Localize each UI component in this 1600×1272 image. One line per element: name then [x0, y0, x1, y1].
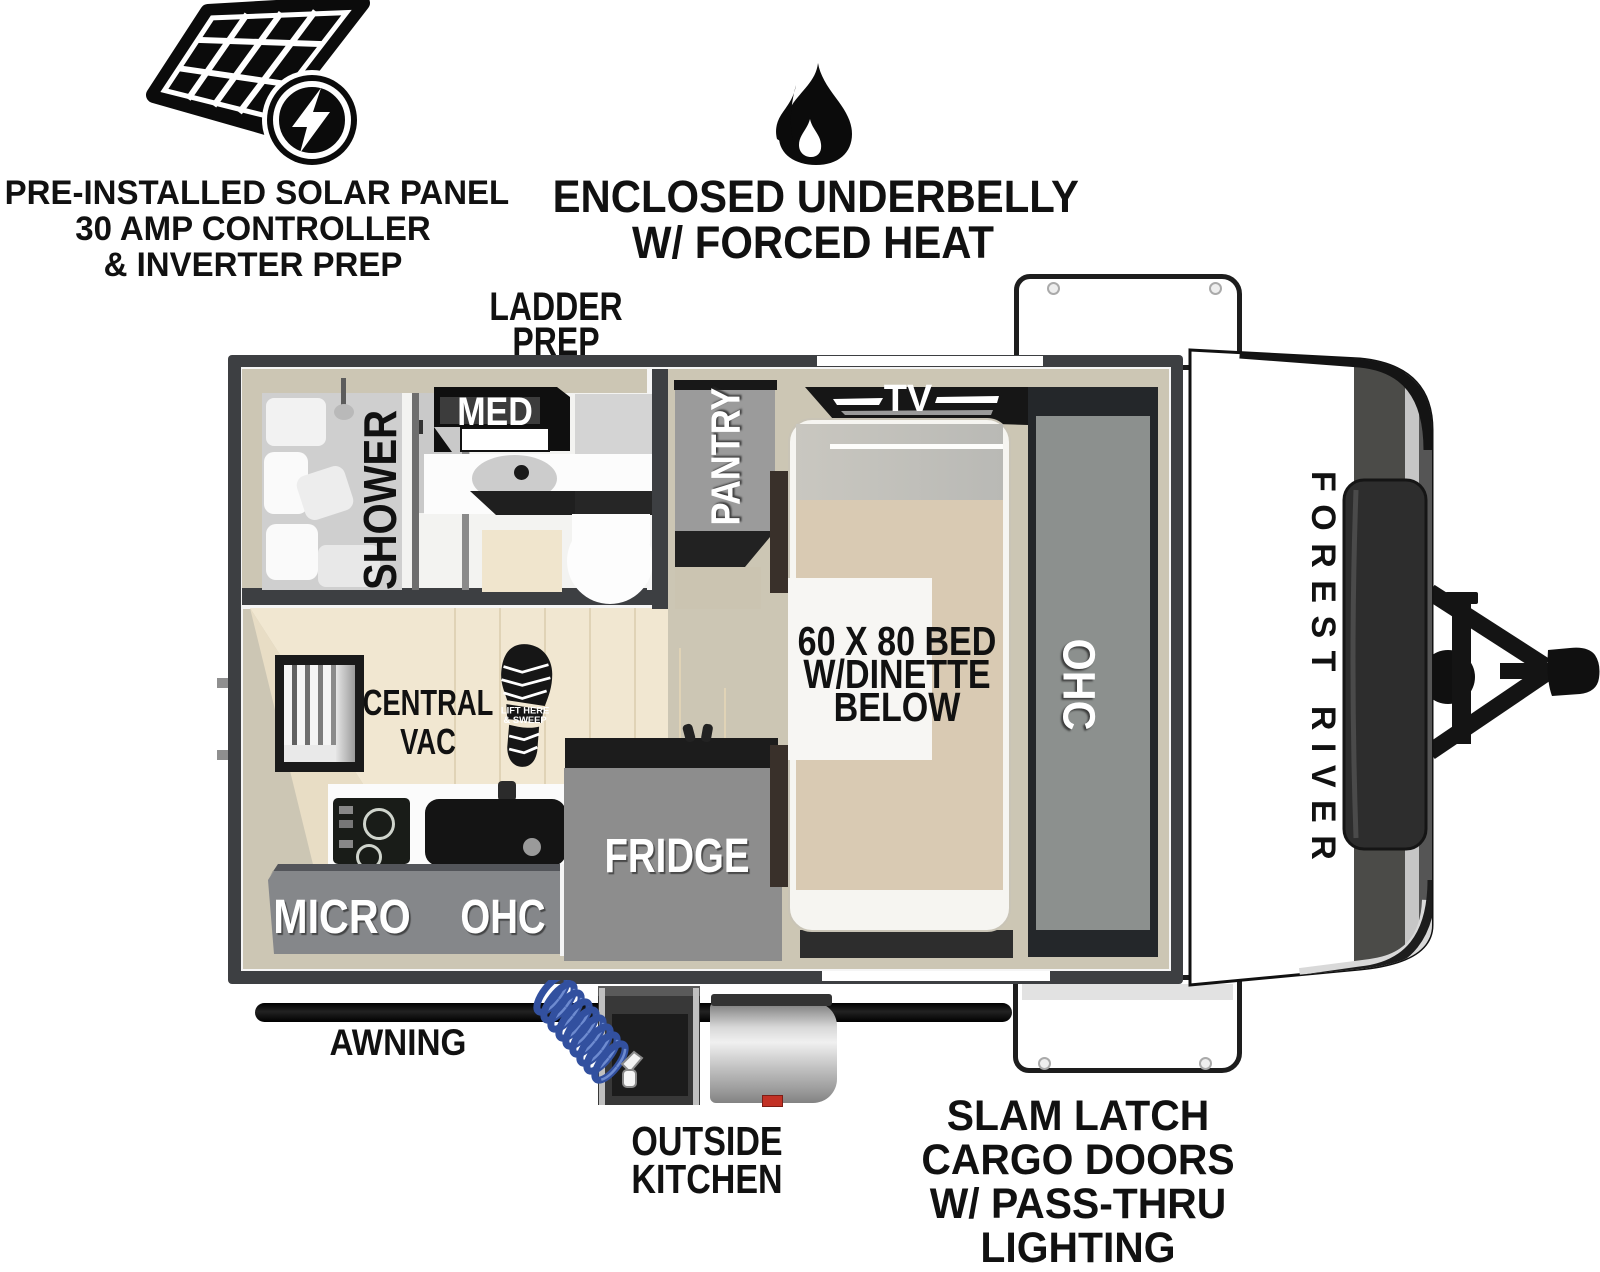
svg-text:& SWEEP: & SWEEP [503, 715, 546, 725]
